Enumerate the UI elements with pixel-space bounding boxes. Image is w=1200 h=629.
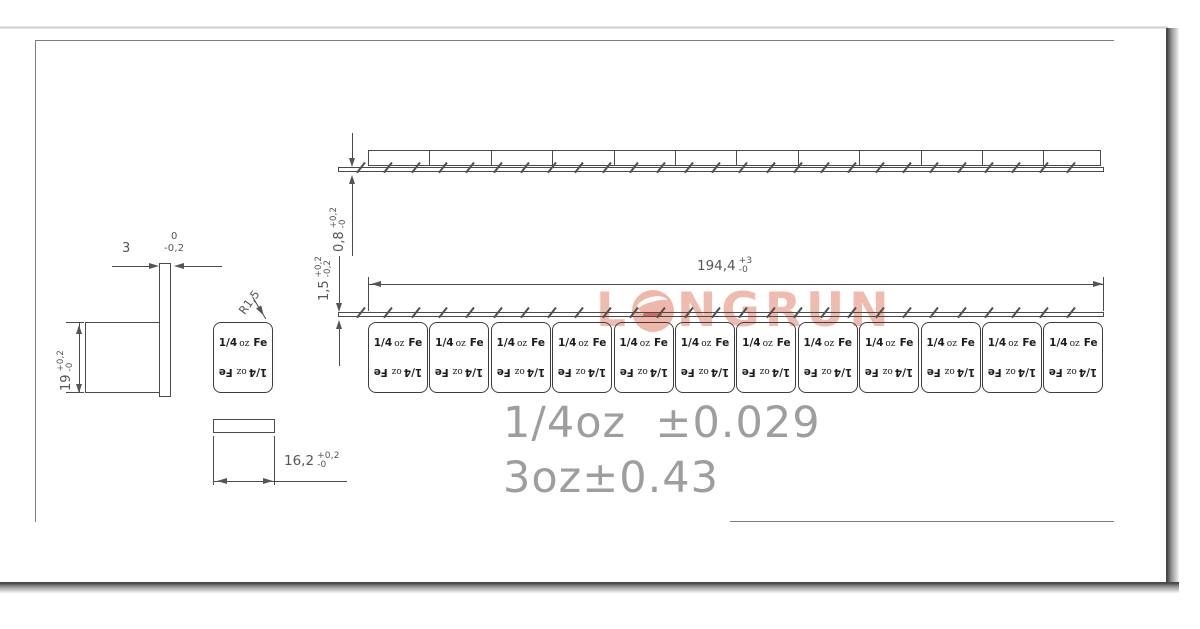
weight-label-part: oz <box>576 366 586 376</box>
weight-label-part: oz <box>578 339 588 349</box>
weight-label-part: Fe <box>961 337 975 349</box>
frame-border-left <box>35 40 36 522</box>
weight-label-mirrored: 1/4ozFe <box>799 365 857 384</box>
dim-line <box>181 266 222 267</box>
arrowhead-icon <box>214 478 227 484</box>
bar-segment-divider <box>859 151 860 165</box>
strip-weight-block: 1/4ozFe1/4ozFe <box>1043 322 1103 393</box>
weight-label-part: 1/4 <box>404 366 422 378</box>
weight-label-part: Fe <box>742 366 756 378</box>
strip-weight-block: 1/4ozFe1/4ozFe <box>614 322 674 393</box>
weight-label-part: oz <box>237 366 247 376</box>
weight-label-mirrored: 1/4ozFe <box>1044 365 1102 384</box>
weight-label-part: Fe <box>558 366 572 378</box>
weight-label-part: 1/4 <box>465 366 483 378</box>
weight-label-mirrored: 1/4ozFe <box>553 365 611 384</box>
weight-label-part: oz <box>699 366 709 376</box>
page-right-shadow <box>1166 28 1179 590</box>
weight-label-part: Fe <box>988 366 1002 378</box>
weight-label-part: 1/4 <box>558 337 576 349</box>
dim-adhesive-thickness: 1,5 +0,2 -0,2 <box>315 256 333 301</box>
weight-label-part: Fe <box>408 337 422 349</box>
weight-label-part: 1/4 <box>988 337 1006 349</box>
weight-label-part: Fe <box>593 337 607 349</box>
dim-tape-thickness: 0,8 +0,2 -0 <box>330 207 348 252</box>
bar-segment-divider <box>429 151 430 165</box>
strip-weight-block: 1/4ozFe1/4ozFe <box>675 322 735 393</box>
weight-label-part: 1/4 <box>772 366 790 378</box>
dim-value: 3 <box>122 241 130 256</box>
weight-label-part: oz <box>392 366 402 376</box>
tol-minus: -0 <box>739 266 753 275</box>
weight-label-part: 1/4 <box>527 366 545 378</box>
arrowhead-icon <box>149 263 162 269</box>
arrowhead-icon <box>76 384 82 396</box>
bar-segment-divider <box>675 151 676 165</box>
weight-label-part: 1/4 <box>865 337 883 349</box>
tolerance-note-line2: 3oz±0.43 <box>503 453 719 503</box>
weight-label-part: Fe <box>253 337 267 349</box>
weight-label-mirrored: 1/4ozFe <box>983 365 1041 384</box>
weight-label-mirrored: 1/4ozFe <box>615 365 673 384</box>
weight-label-part: 1/4 <box>435 337 453 349</box>
weight-label-part: 1/4 <box>1079 366 1097 378</box>
strip-weight-block: 1/4ozFe1/4ozFe <box>368 322 428 393</box>
weight-label-part: oz <box>760 366 770 376</box>
weight-label-part: 1/4 <box>1049 337 1067 349</box>
dim-block-width: 16,2 +0,2 -0 <box>284 452 340 470</box>
drawing-sheet: L NGRUN 0,8 +0,2 -0 1,5 +0,2 -0,2 <box>0 0 1200 629</box>
strip-weight-block: 1/4ozFe1/4ozFe <box>736 322 796 393</box>
weight-label-mirrored: 1/4ozFe <box>860 365 918 384</box>
arrowhead-icon <box>171 263 184 269</box>
tol-minus: -0 <box>317 461 340 470</box>
arrowhead-icon <box>1093 281 1106 287</box>
weight-label: 1/4ozFe <box>214 331 272 350</box>
dim-tolerance: +0,2 -0,2 <box>315 256 333 277</box>
weight-label: 1/4ozFe <box>553 331 611 350</box>
weight-label-part: oz <box>1006 366 1016 376</box>
weight-label-part: Fe <box>715 337 729 349</box>
weight-label-part: oz <box>453 366 463 376</box>
weight-label: 1/4ozFe <box>983 331 1041 350</box>
weight-label-part: oz <box>885 339 895 349</box>
weight-label: 1/4ozFe <box>799 331 857 350</box>
weight-label: 1/4ozFe <box>492 331 550 350</box>
dim-line <box>352 133 353 158</box>
dim-line <box>368 284 1103 285</box>
weight-label-part: oz <box>239 339 249 349</box>
dim-tolerance: +0,2 -0 <box>57 350 75 371</box>
weight-label-part: 1/4 <box>895 366 913 378</box>
dim-block-thickness: 3 <box>122 241 130 256</box>
weight-label-part: 1/4 <box>926 337 944 349</box>
tolerance-note-line1: 1/4oz ±0.029 <box>503 398 821 448</box>
dim-block-height: 19 +0,2 -0 <box>57 350 75 391</box>
weight-label-part: 1/4 <box>219 337 237 349</box>
weight-label-part: oz <box>637 366 647 376</box>
weight-label-part: 1/4 <box>649 366 667 378</box>
weight-label-mirrored: 1/4ozFe <box>737 365 795 384</box>
strip-weight-block: 1/4ozFe1/4ozFe <box>798 322 858 393</box>
weight-label-part: Fe <box>435 366 449 378</box>
weight-label-part: oz <box>394 339 404 349</box>
weight-label-part: Fe <box>777 337 791 349</box>
weight-label-part: 1/4 <box>497 337 515 349</box>
weight-label-part: 1/4 <box>374 337 392 349</box>
weight-label-part: Fe <box>374 366 388 378</box>
dim-tolerance: 0 -0,2 <box>164 231 184 255</box>
weight-label-mirrored: 1/4ozFe <box>922 365 980 384</box>
weight-label-part: oz <box>514 366 524 376</box>
dim-line <box>352 181 353 256</box>
weight-label-part: oz <box>883 366 893 376</box>
weight-label-part: oz <box>456 339 466 349</box>
weight-label-part: 1/4 <box>619 337 637 349</box>
strip-weight-block: 1/4ozFe1/4ozFe <box>859 322 919 393</box>
weight-label-mirrored: 1/4ozFe <box>430 365 488 384</box>
strip-weight-block: 1/4ozFe1/4ozFe <box>921 322 981 393</box>
weight-label-part: oz <box>701 339 711 349</box>
bar-segment-divider <box>491 151 492 165</box>
weight-label-part: Fe <box>219 366 233 378</box>
strip-weight-block: 1/4ozFe1/4ozFe <box>429 322 489 393</box>
weight-label-part: Fe <box>865 366 879 378</box>
tol-minus: -0,2 <box>164 243 184 255</box>
arrowhead-icon <box>349 172 355 184</box>
dim-tolerance: +0,2 -0 <box>330 207 348 228</box>
page-top-edge <box>0 26 1168 29</box>
strip-weight-block: 1/4ozFe1/4ozFe <box>491 322 551 393</box>
dim-value: 0,8 <box>332 231 347 252</box>
weight-label-part: Fe <box>900 337 914 349</box>
dim-tolerance: +0,2 -0 <box>317 452 340 470</box>
tol-minus: -0 <box>66 350 75 371</box>
page-bottom-shadow <box>0 582 1179 593</box>
weight-label-part: oz <box>1070 339 1080 349</box>
tol-minus: -0 <box>339 207 348 228</box>
weight-label-part: Fe <box>681 366 695 378</box>
sideview-single-block <box>85 322 160 393</box>
weight-label: 1/4ozFe <box>922 331 980 350</box>
weight-label-part: oz <box>763 339 773 349</box>
weight-label-part: Fe <box>1049 366 1063 378</box>
weight-label-part: 1/4 <box>956 366 974 378</box>
dim-strip-length: 194,4 +3 -0 <box>697 257 752 275</box>
arrowhead-icon <box>349 158 355 170</box>
strip-weight-block: 1/4ozFe1/4ozFe <box>982 322 1042 393</box>
weight-label-part: Fe <box>654 337 668 349</box>
weight-label-part: oz <box>821 366 831 376</box>
weight-label-mirrored: 1/4ozFe <box>369 365 427 384</box>
weight-label: 1/4ozFe <box>737 331 795 350</box>
weight-label-part: 1/4 <box>1018 366 1036 378</box>
weight-label: 1/4ozFe <box>1044 331 1102 350</box>
weight-label-part: 1/4 <box>249 366 267 378</box>
tol-plus: 0 <box>171 231 184 243</box>
weight-label-mirrored: 1/4ozFe <box>214 365 272 384</box>
strip-weight-block: 1/4ozFe1/4ozFe <box>552 322 612 393</box>
arrowhead-icon <box>256 305 268 319</box>
weight-label-part: Fe <box>1022 337 1036 349</box>
frame-border-top <box>35 40 1114 41</box>
dim-block-thickness-tolerance: 0 -0,2 <box>161 231 184 255</box>
arrowhead-icon <box>368 281 381 287</box>
weight-label-part: oz <box>640 339 650 349</box>
weight-label: 1/4ozFe <box>430 331 488 350</box>
bar-segment-divider <box>614 151 615 165</box>
weight-label: 1/4ozFe <box>615 331 673 350</box>
bar-segment-divider <box>1043 151 1044 165</box>
dim-tolerance: +3 -0 <box>739 257 753 275</box>
weight-label-part: 1/4 <box>681 337 699 349</box>
bar-segment-divider <box>921 151 922 165</box>
weight-label-part: Fe <box>804 366 818 378</box>
dim-value: 19 <box>59 374 74 391</box>
weight-label-part: oz <box>944 366 954 376</box>
weight-label-part: 1/4 <box>742 337 760 349</box>
weight-label-part: Fe <box>619 366 633 378</box>
dim-line <box>214 481 347 482</box>
dim-line <box>112 266 149 267</box>
arrowhead-icon <box>263 478 276 484</box>
weight-label-part: Fe <box>497 366 511 378</box>
weight-label-part: Fe <box>531 337 545 349</box>
weight-label-part: oz <box>1067 366 1077 376</box>
weight-label-part: 1/4 <box>804 337 822 349</box>
tol-minus: -0,2 <box>324 256 333 277</box>
weight-label-part: oz <box>1008 339 1018 349</box>
title-block-top-line <box>730 521 1114 522</box>
bar-segment-divider <box>982 151 983 165</box>
weight-label-part: oz <box>517 339 527 349</box>
arrowhead-icon <box>336 303 342 315</box>
weight-label-part: Fe <box>470 337 484 349</box>
dim-value: 16,2 <box>284 453 314 469</box>
dim-value: 1,5 <box>317 280 332 301</box>
weight-label-mirrored: 1/4ozFe <box>676 365 734 384</box>
dim-line <box>339 326 340 366</box>
bar-segment-divider <box>736 151 737 165</box>
weight-label-part: oz <box>824 339 834 349</box>
arrowhead-icon <box>76 322 82 334</box>
weight-label-part: 1/4 <box>588 366 606 378</box>
sideview-tape-strip <box>159 263 171 397</box>
weight-label-part: 1/4 <box>834 366 852 378</box>
weight-label-part: Fe <box>926 366 940 378</box>
weight-label: 1/4ozFe <box>369 331 427 350</box>
dim-line <box>339 256 340 303</box>
weight-label: 1/4ozFe <box>676 331 734 350</box>
single-weight-block: 1/4ozFe1/4ozFe <box>213 322 273 393</box>
bottomview-block <box>213 419 275 433</box>
arrowhead-icon <box>336 317 342 329</box>
weight-label-part: oz <box>947 339 957 349</box>
weight-label: 1/4ozFe <box>860 331 918 350</box>
weight-label-mirrored: 1/4ozFe <box>492 365 550 384</box>
weight-label-part: Fe <box>1084 337 1098 349</box>
dim-value: 194,4 <box>697 258 736 274</box>
weight-label-part: Fe <box>838 337 852 349</box>
weight-label-part: 1/4 <box>711 366 729 378</box>
